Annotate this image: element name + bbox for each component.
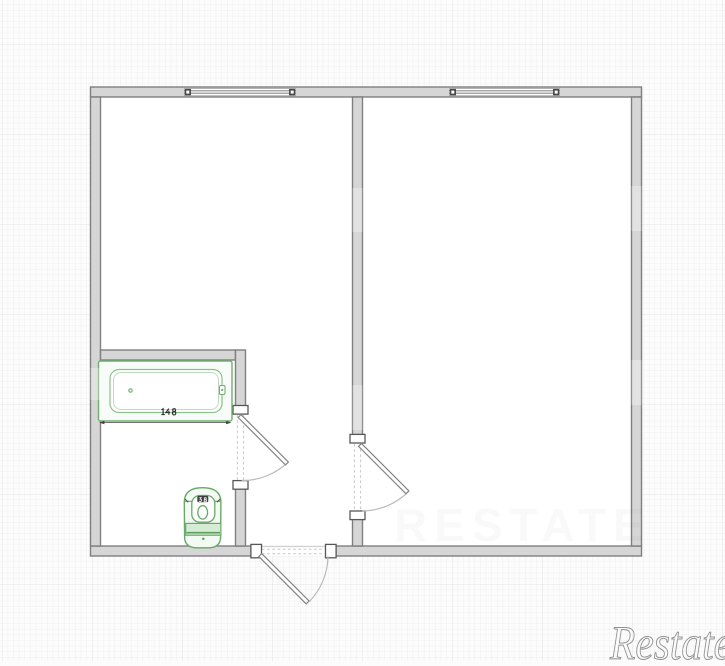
svg-text:Restate: Restate (609, 617, 725, 661)
svg-text:RESTATE: RESTATE (394, 499, 651, 551)
